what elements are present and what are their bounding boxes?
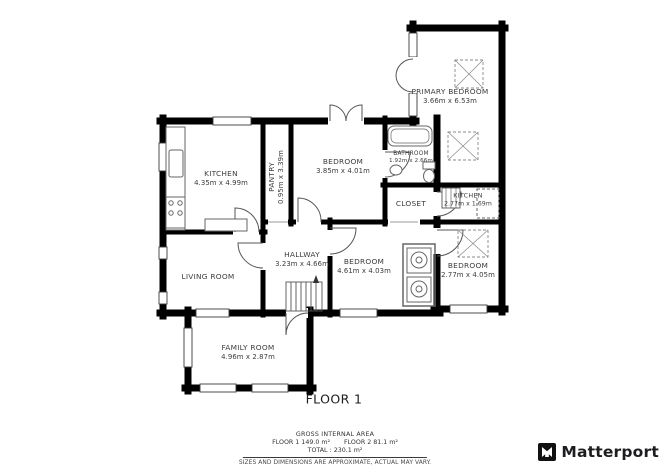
floor-title: FLOOR 1 — [306, 392, 363, 407]
bath-sink-icon — [390, 165, 402, 175]
matterport-logo: Matterport — [538, 443, 659, 461]
ceiling-hatch-icons — [448, 60, 488, 257]
stairs-arrow-icon — [313, 275, 319, 283]
total-area-line: TOTAL : 230.1 m² — [239, 447, 431, 454]
laundry-fixtures — [403, 244, 435, 306]
wing-counter — [477, 189, 499, 218]
disclaimer-text: SIZES AND DIMENSIONS ARE APPROXIMATE, AC… — [239, 460, 431, 466]
stairs — [286, 275, 322, 311]
kitchen-island — [205, 219, 247, 231]
wing-kitchen-fixtures — [442, 188, 499, 218]
gross-area-title: GROSS INTERNAL AREA — [239, 431, 431, 438]
toilet-icon — [423, 162, 435, 169]
matterport-logo-icon — [538, 443, 556, 461]
area-summary: GROSS INTERNAL AREA FLOOR 1 149.0 m²FLOO… — [239, 431, 431, 466]
footer-divider — [243, 457, 427, 458]
floor-areas-line: FLOOR 1 149.0 m²FLOOR 2 81.1 m² — [239, 439, 431, 446]
kitchen-sink-icon — [169, 150, 183, 177]
interior-walls — [163, 118, 503, 315]
bathroom-fixtures — [388, 126, 435, 183]
matterport-logo-text: Matterport — [561, 443, 659, 461]
floor-plan-page: PRIMARY BEDROOM 3.66m x 6.53m KITCHEN 4.… — [0, 0, 668, 472]
